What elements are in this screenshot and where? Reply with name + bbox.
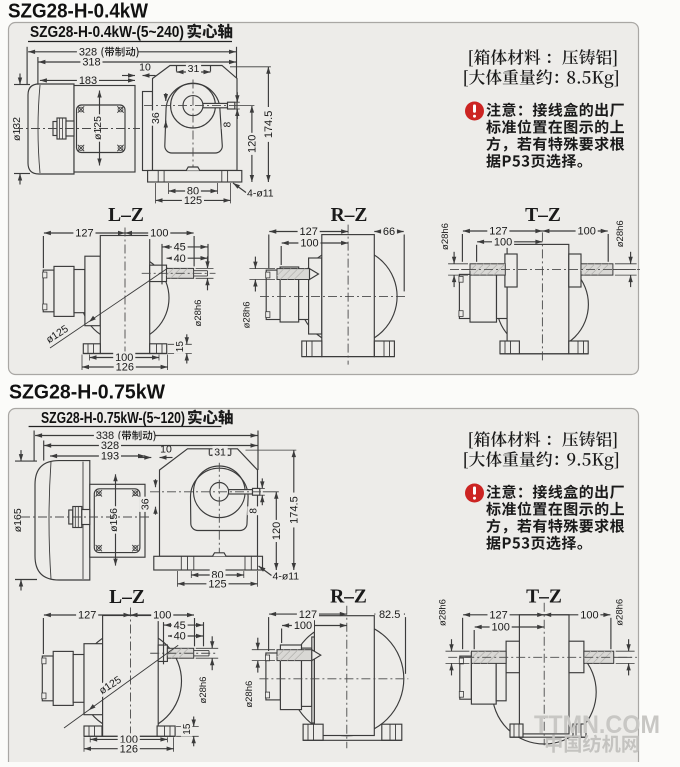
svg-text:4-ø11: 4-ø11 xyxy=(247,188,274,200)
svg-text:126: 126 xyxy=(116,362,134,374)
svg-text:ø28h6: ø28h6 xyxy=(438,599,449,626)
svg-text:126: 126 xyxy=(120,743,138,755)
svg-text:127: 127 xyxy=(299,609,317,621)
svg-text:31: 31 xyxy=(214,446,226,458)
svg-text:193: 193 xyxy=(101,451,119,463)
svg-text:120: 120 xyxy=(271,522,283,540)
svg-text:15: 15 xyxy=(175,341,186,353)
svg-text:100: 100 xyxy=(578,226,596,238)
svg-text:100: 100 xyxy=(492,622,510,634)
svg-text:L–Z: L–Z xyxy=(108,205,144,226)
svg-text:127: 127 xyxy=(75,228,93,240)
svg-text:100: 100 xyxy=(300,238,318,250)
svg-text:66: 66 xyxy=(383,226,395,238)
svg-text:127: 127 xyxy=(300,226,318,238)
svg-text:174.5: 174.5 xyxy=(289,496,301,524)
svg-text:ø125: ø125 xyxy=(92,116,104,140)
svg-text:SZG28-H-0.4kW-(5~240): SZG28-H-0.4kW-(5~240) xyxy=(30,24,184,41)
svg-text:8: 8 xyxy=(248,508,259,514)
svg-text:R–Z: R–Z xyxy=(330,587,367,608)
svg-text:127: 127 xyxy=(78,610,96,622)
svg-text:8: 8 xyxy=(223,121,234,127)
svg-text:ø28h6: ø28h6 xyxy=(615,599,626,626)
svg-text:125: 125 xyxy=(208,579,226,591)
svg-text:ø28h6: ø28h6 xyxy=(440,223,451,250)
svg-text:10: 10 xyxy=(139,62,151,74)
svg-text:127: 127 xyxy=(489,610,507,622)
svg-text:4-ø11: 4-ø11 xyxy=(273,571,300,583)
svg-text:L–Z: L–Z xyxy=(109,587,145,608)
svg-text:SZG28-H-0.4kW: SZG28-H-0.4kW xyxy=(8,0,149,23)
svg-text:36: 36 xyxy=(140,498,152,510)
svg-text:100: 100 xyxy=(494,237,512,249)
svg-text:120: 120 xyxy=(247,135,259,153)
svg-text:ø28h6: ø28h6 xyxy=(242,301,253,328)
svg-text:100: 100 xyxy=(580,610,598,622)
svg-text:SZG28-H-0.75kW-(5~120): SZG28-H-0.75kW-(5~120) xyxy=(41,410,185,427)
svg-text:ø28h6: ø28h6 xyxy=(193,300,204,327)
svg-text:40: 40 xyxy=(174,253,186,265)
svg-text:82.5: 82.5 xyxy=(379,609,400,621)
svg-text:45: 45 xyxy=(174,242,186,254)
svg-text:R–Z: R–Z xyxy=(331,205,368,226)
svg-text:100: 100 xyxy=(294,620,312,632)
svg-text:174.5: 174.5 xyxy=(263,111,275,139)
svg-text:31: 31 xyxy=(188,63,200,75)
svg-text:ø28h6: ø28h6 xyxy=(244,681,255,708)
svg-text:10: 10 xyxy=(160,444,172,456)
svg-text:15: 15 xyxy=(182,723,193,735)
svg-text:40: 40 xyxy=(174,631,186,643)
svg-text:100: 100 xyxy=(153,610,171,622)
svg-text:SZG28-H-0.75kW: SZG28-H-0.75kW xyxy=(9,381,166,404)
svg-text:125: 125 xyxy=(184,195,202,207)
svg-text:318: 318 xyxy=(82,57,100,69)
svg-text:T–Z: T–Z xyxy=(525,205,561,226)
svg-text:ø28h6: ø28h6 xyxy=(615,220,626,247)
svg-text:ø165: ø165 xyxy=(12,508,24,532)
svg-text:ø28h6: ø28h6 xyxy=(198,677,209,704)
svg-text:ø156: ø156 xyxy=(108,508,120,532)
svg-text:100: 100 xyxy=(150,228,168,240)
svg-text:36: 36 xyxy=(150,112,162,124)
